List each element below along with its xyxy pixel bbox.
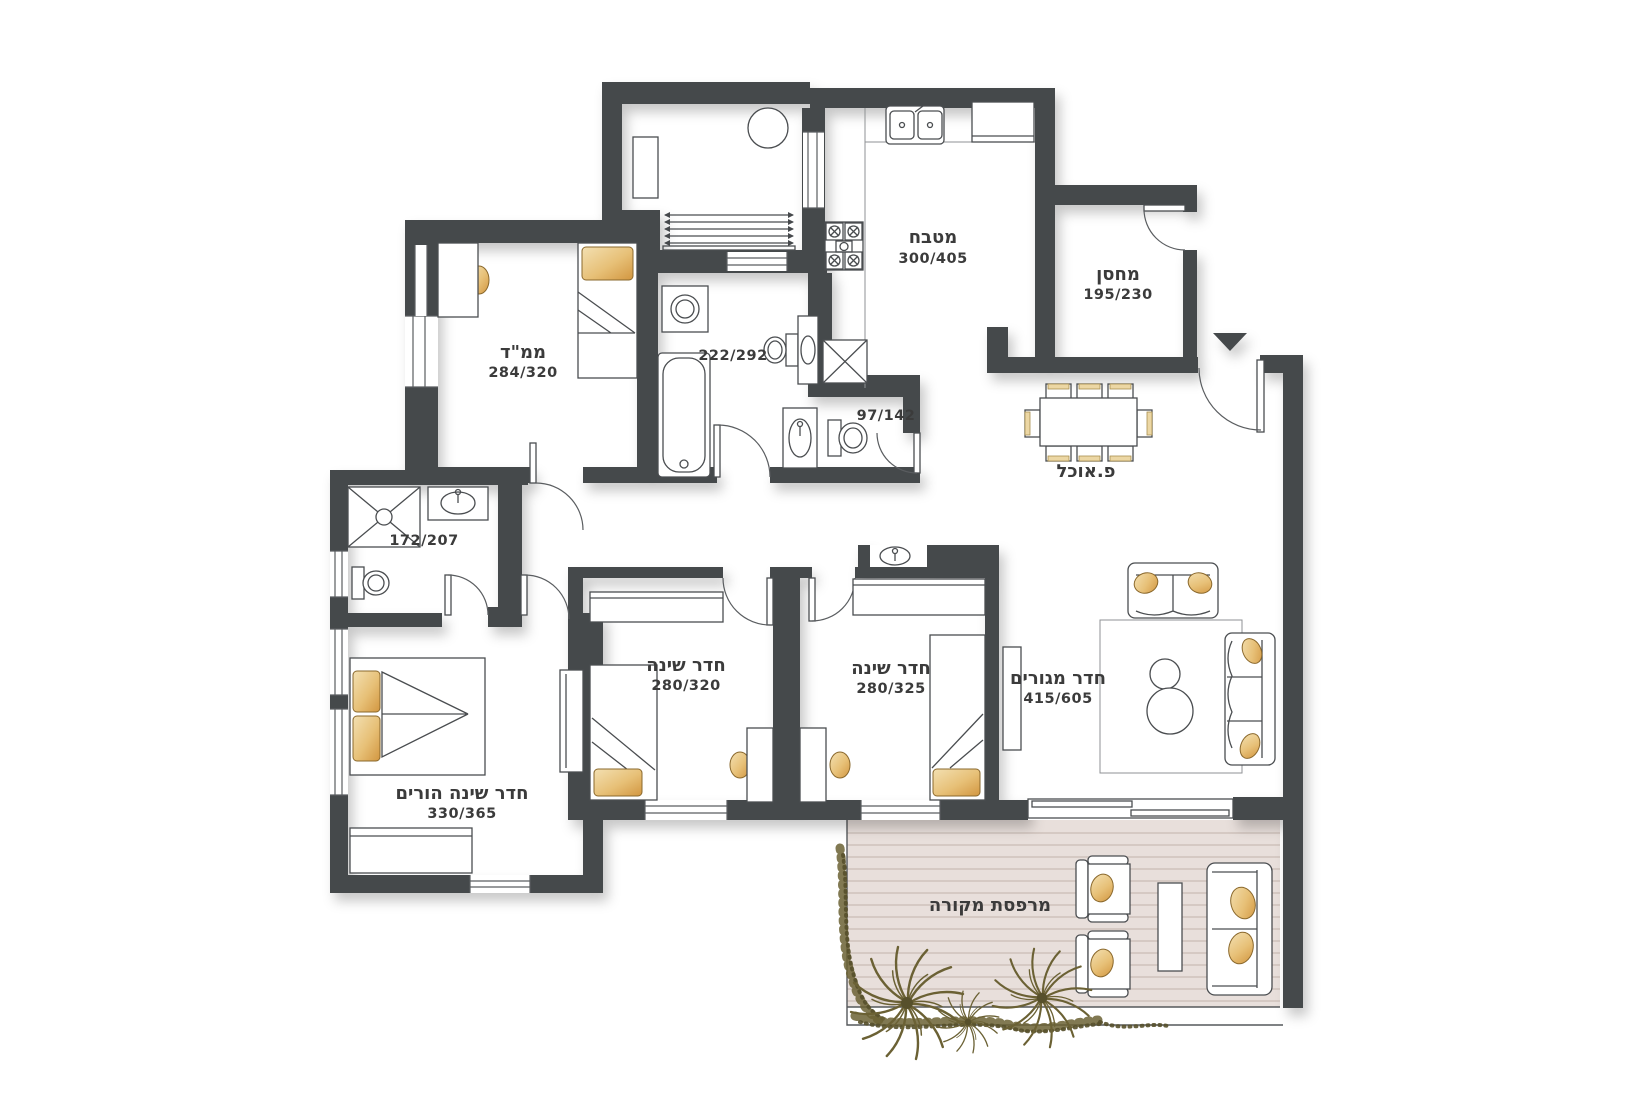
storage-label: מחסן — [1096, 264, 1140, 285]
sofa-icon — [1225, 633, 1275, 765]
window-bedroom1 — [645, 800, 727, 820]
door-entrance — [1199, 360, 1264, 432]
kitchen-sink-icon — [886, 106, 944, 144]
chair-icon — [1108, 446, 1133, 461]
living-room-label: חדר מגורים — [1010, 668, 1106, 689]
dining-set — [1025, 384, 1152, 461]
bedroom1-furniture — [590, 592, 773, 802]
dining-label: פ.אוכל — [1056, 461, 1115, 482]
door-bedroom2 — [809, 578, 855, 621]
fridge-icon — [972, 102, 1034, 142]
vanity-sink-icon — [428, 487, 488, 520]
wc-fixtures — [783, 408, 867, 468]
window-master-bottom — [470, 875, 530, 893]
chair-icon — [1025, 410, 1040, 437]
bed-icon — [578, 243, 637, 378]
wardrobe-icon — [350, 828, 472, 873]
pillow — [353, 716, 380, 761]
boiler-icon — [748, 108, 788, 148]
bathroom-size: 222/292 — [698, 348, 767, 364]
door-safe-room — [530, 443, 583, 530]
pillow — [933, 769, 980, 796]
chair-icon — [1046, 384, 1071, 399]
wc-size: 97/142 — [857, 408, 916, 424]
toilet-icon — [764, 334, 798, 366]
safe-room-label: ממ"ד — [500, 342, 546, 363]
master-label: חדר שינה הורים — [395, 783, 528, 804]
shower-room-size: 172/207 — [389, 533, 458, 549]
door-master — [521, 575, 569, 619]
dresser-icon — [560, 670, 583, 772]
bathtub-icon — [658, 353, 710, 477]
chair-icon — [1137, 410, 1152, 437]
window-master-2 — [330, 709, 348, 795]
dining-table-icon — [1040, 398, 1137, 446]
pillow — [353, 671, 380, 712]
window-master-1 — [330, 629, 348, 695]
closet-icon — [590, 592, 723, 622]
chair-icon — [1108, 384, 1133, 399]
bedroom2-size: 280/325 — [856, 681, 925, 697]
vanity-sink-icon — [783, 408, 817, 468]
bed-icon — [930, 635, 985, 800]
bedroom2-label: חדר שינה — [851, 658, 931, 679]
stove-icon — [825, 222, 863, 270]
pillow — [582, 247, 633, 280]
washing-machine-icon — [662, 286, 708, 332]
balcony-label: מרפסת מקורה — [929, 895, 1051, 916]
cabinet-icon — [633, 137, 658, 198]
window-shower-room — [330, 551, 348, 597]
chair-icon — [1077, 384, 1102, 399]
coffee-table-icon — [1147, 688, 1193, 734]
drying-rack-icon — [663, 215, 795, 250]
side-table-icon — [1158, 883, 1182, 971]
door-bedroom1 — [723, 578, 773, 625]
closet-icon — [853, 579, 985, 615]
sliding-door-balcony — [1028, 797, 1233, 820]
hall-basin-niche — [870, 545, 927, 567]
vanity-icon — [798, 316, 818, 384]
door-bathroom — [714, 425, 770, 477]
safe-room-size: 284/320 — [488, 365, 557, 381]
chair-icon — [1046, 446, 1071, 461]
base-cabinet-icon — [823, 340, 867, 383]
window-bedroom2 — [861, 800, 940, 820]
kitchen-label: מטבח — [909, 227, 958, 248]
tv-cabinet-icon — [1003, 647, 1021, 750]
master-size: 330/365 — [427, 806, 496, 822]
window-service-hatch — [727, 252, 787, 271]
bed-icon — [590, 665, 657, 800]
loveseat-icon — [1128, 563, 1218, 618]
pillow — [594, 769, 642, 796]
storage-size: 195/230 — [1083, 287, 1152, 303]
chair-icon — [1077, 446, 1102, 461]
window-kitchen-service — [803, 132, 824, 208]
door-storage — [1144, 205, 1185, 250]
desk-icon — [800, 728, 850, 802]
door-shower-room — [445, 575, 488, 615]
bedroom1-size: 280/320 — [651, 678, 720, 694]
master-furniture — [350, 658, 583, 873]
desk-icon — [730, 728, 773, 802]
floor-plan-canvas: מטבח 300/405 מחסן 195/230 ממ"ד 284/320 2… — [0, 0, 1632, 1120]
armchair-icon — [1076, 931, 1130, 997]
armchair-icon — [1076, 856, 1130, 922]
toilet-icon — [352, 567, 389, 599]
kitchen-size: 300/405 — [898, 251, 967, 267]
toilet-icon — [828, 420, 867, 456]
outdoor-sofa-icon — [1207, 863, 1272, 995]
double-bed-icon — [350, 658, 485, 775]
entrance-arrow-icon — [1213, 333, 1247, 351]
desk-icon — [438, 243, 489, 317]
coffee-table-icon — [1150, 659, 1180, 689]
living-room-size: 415/605 — [1023, 691, 1092, 707]
bedroom1-label: חדר שינה — [646, 655, 726, 676]
